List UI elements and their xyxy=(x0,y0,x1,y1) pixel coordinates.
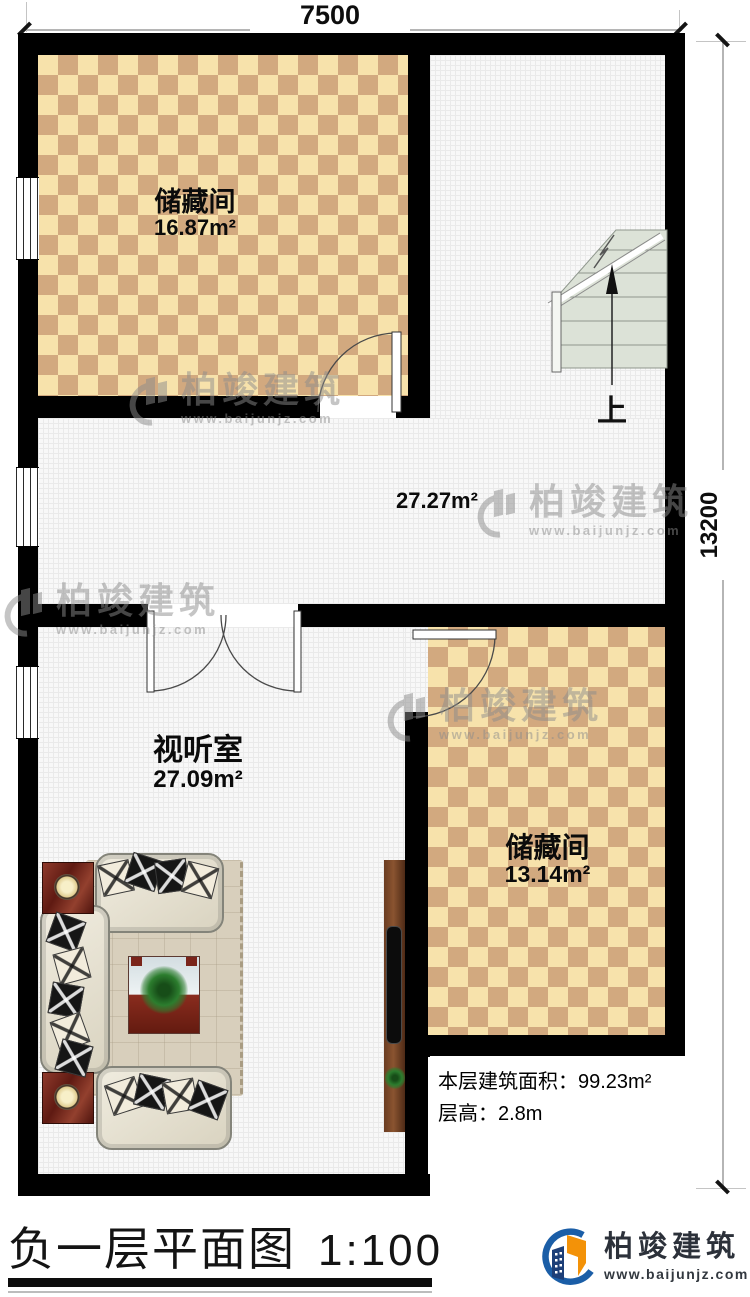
dimension-top-label: 7500 xyxy=(250,0,410,31)
watermark-logo-icon xyxy=(388,688,430,742)
watermark: 柏竣建筑 www.baijunjz.com xyxy=(388,688,603,742)
wall-storage-bottom-left xyxy=(405,712,428,1196)
side-table-bottom xyxy=(42,1072,94,1124)
room-area: 27.09m² xyxy=(118,767,278,792)
watermark-url: www.baijunjz.com xyxy=(56,622,220,637)
dimension-right-line xyxy=(722,40,724,1190)
window xyxy=(16,666,39,739)
watermark-url: www.baijunjz.com xyxy=(439,727,603,742)
wall-door-jamb xyxy=(396,396,408,418)
room-area: 16.87m² xyxy=(120,216,270,239)
stairs-up-label: 上 xyxy=(597,386,627,430)
watermark-text: 柏竣建筑 xyxy=(529,484,693,520)
title-block: 负一层平面图 1:100 xyxy=(8,1213,443,1279)
lamp xyxy=(54,1084,80,1110)
room-area: 13.14m² xyxy=(430,862,665,886)
wall-right xyxy=(665,33,685,1057)
watermark-text: 柏竣建筑 xyxy=(56,583,220,619)
watermark-logo-icon xyxy=(5,583,47,637)
window xyxy=(16,467,39,547)
wall-storage-top-right xyxy=(408,33,430,418)
title-underline-thin xyxy=(8,1291,432,1293)
dimension-right-label: 13200 xyxy=(696,470,724,580)
watermark-url: www.baijunjz.com xyxy=(181,411,345,426)
watermark: 柏竣建筑 www.baijunjz.com xyxy=(130,372,345,426)
room-label-av-room: 视听室 27.09m² xyxy=(118,735,278,792)
wall-bottom xyxy=(18,1174,430,1196)
room-name: 储藏间 xyxy=(120,188,270,216)
watermark-text: 柏竣建筑 xyxy=(181,372,345,408)
company-logo-icon xyxy=(540,1226,596,1288)
floor-height-line: 层高：2.8m xyxy=(438,1098,686,1130)
watermark: 柏竣建筑 www.baijunjz.com xyxy=(478,484,693,538)
coffee-table-corner xyxy=(131,957,142,966)
room-name: 视听室 xyxy=(118,735,278,767)
info-box: 本层建筑面积：99.23m² 层高：2.8m xyxy=(430,1056,686,1142)
side-table-top xyxy=(42,862,94,914)
window xyxy=(16,177,39,260)
wall-mid-right xyxy=(298,604,685,627)
plan-scale: 1:100 xyxy=(318,1226,443,1276)
watermark-text: 柏竣建筑 xyxy=(439,688,603,724)
watermark-url: www.baijunjz.com xyxy=(529,523,693,538)
room-label-storage-top: 储藏间 16.87m² xyxy=(120,188,270,239)
room-name: 储藏间 xyxy=(430,833,665,862)
title-underline xyxy=(8,1278,432,1287)
company-logo: 柏竣建筑 www.baijunjz.com xyxy=(540,1226,749,1288)
room-label-hall-area: 27.27m² xyxy=(396,489,478,512)
watermark-logo-icon xyxy=(478,484,520,538)
coffee-table-corner xyxy=(186,957,197,966)
company-website: www.baijunjz.com xyxy=(604,1266,749,1282)
watermark-logo-icon xyxy=(130,372,172,426)
plant-small xyxy=(385,1066,405,1090)
room-label-storage-bottom: 储藏间 13.14m² xyxy=(430,833,665,887)
lamp xyxy=(54,874,80,900)
floor-area-line: 本层建筑面积：99.23m² xyxy=(438,1066,686,1098)
wall-top xyxy=(18,33,685,55)
plant xyxy=(140,966,188,1014)
tv xyxy=(386,926,402,1044)
company-name: 柏竣建筑 xyxy=(604,1233,749,1262)
wall-storage-bottom-bottom xyxy=(405,1035,685,1057)
plan-title: 负一层平面图 xyxy=(8,1213,296,1279)
floor-plan-canvas: 储藏间 16.87m² 27.27m² 视听室 27.09m² 储藏间 13.1… xyxy=(0,0,750,1297)
watermark: 柏竣建筑 www.baijunjz.com xyxy=(5,583,220,637)
